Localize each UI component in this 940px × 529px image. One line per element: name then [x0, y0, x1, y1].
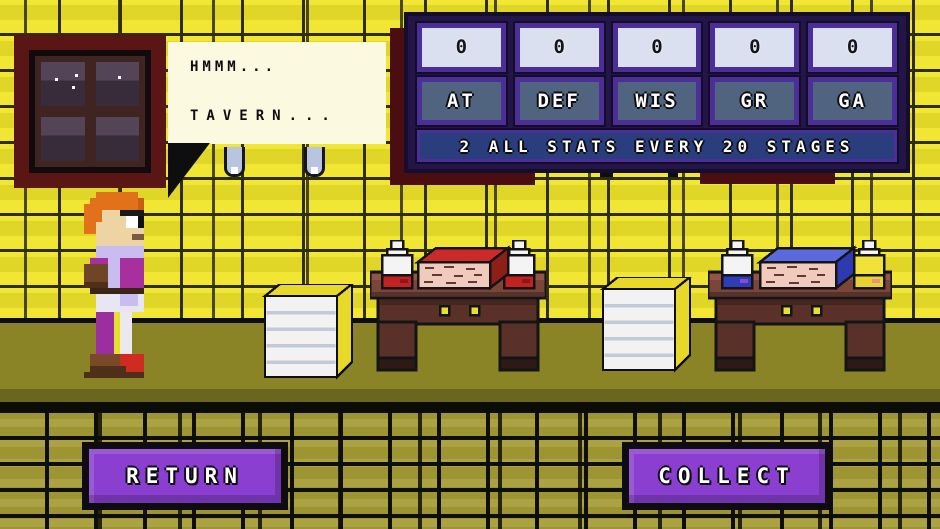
stat-labels-row: AT DEF WIS GR GA	[417, 77, 897, 126]
window-pane	[41, 62, 85, 106]
player-character	[72, 192, 162, 378]
window-pane	[96, 62, 140, 106]
stat-label-ga: GA	[808, 77, 897, 126]
dialogue-line: HMMM...	[190, 59, 386, 75]
stat-value-gr: 0	[710, 23, 799, 72]
stat-values-row: 0 0 0 0 0	[417, 23, 897, 72]
window-frame	[29, 50, 151, 173]
stat-label-at: AT	[417, 77, 506, 126]
speech-bubble: HMMM... TAVERN...	[168, 42, 386, 144]
bottle-blue	[722, 240, 752, 288]
shop-table-blue	[708, 240, 892, 375]
collect-button[interactable]: COLLECT	[622, 442, 832, 510]
stat-value-def: 0	[515, 23, 604, 72]
stat-label-gr: GR	[710, 77, 799, 126]
stat-label-def: DEF	[515, 77, 604, 126]
shop-table-red	[370, 240, 546, 375]
drip-icon	[304, 147, 325, 177]
drip-icon	[224, 147, 245, 177]
stats-panel: 0 0 0 0 0 AT DEF WIS GR GA 2 ALL STATS E…	[404, 12, 910, 173]
window-pane	[96, 117, 140, 161]
stat-value-ga: 0	[808, 23, 897, 72]
towel-stack	[600, 277, 693, 373]
stat-value-wis: 0	[613, 23, 702, 72]
speech-bubble-tail	[168, 143, 210, 198]
red-crate	[418, 248, 508, 288]
return-button[interactable]: RETURN	[82, 442, 288, 510]
blue-crate	[760, 248, 854, 288]
window-night	[14, 35, 166, 188]
stat-label-wis: WIS	[613, 77, 702, 126]
stat-value-at: 0	[417, 23, 506, 72]
stats-footer-banner: 2 ALL STATS EVERY 20 STAGES	[417, 130, 897, 162]
towel-stack	[262, 284, 355, 380]
window-pane	[41, 117, 85, 161]
bottle-red	[382, 240, 412, 288]
dialogue-line: TAVERN...	[190, 108, 386, 124]
bottle-yellow	[854, 240, 884, 288]
game-screen: HMMM... TAVERN... 0 0 0 0 0 AT DEF WIS G…	[0, 0, 940, 529]
